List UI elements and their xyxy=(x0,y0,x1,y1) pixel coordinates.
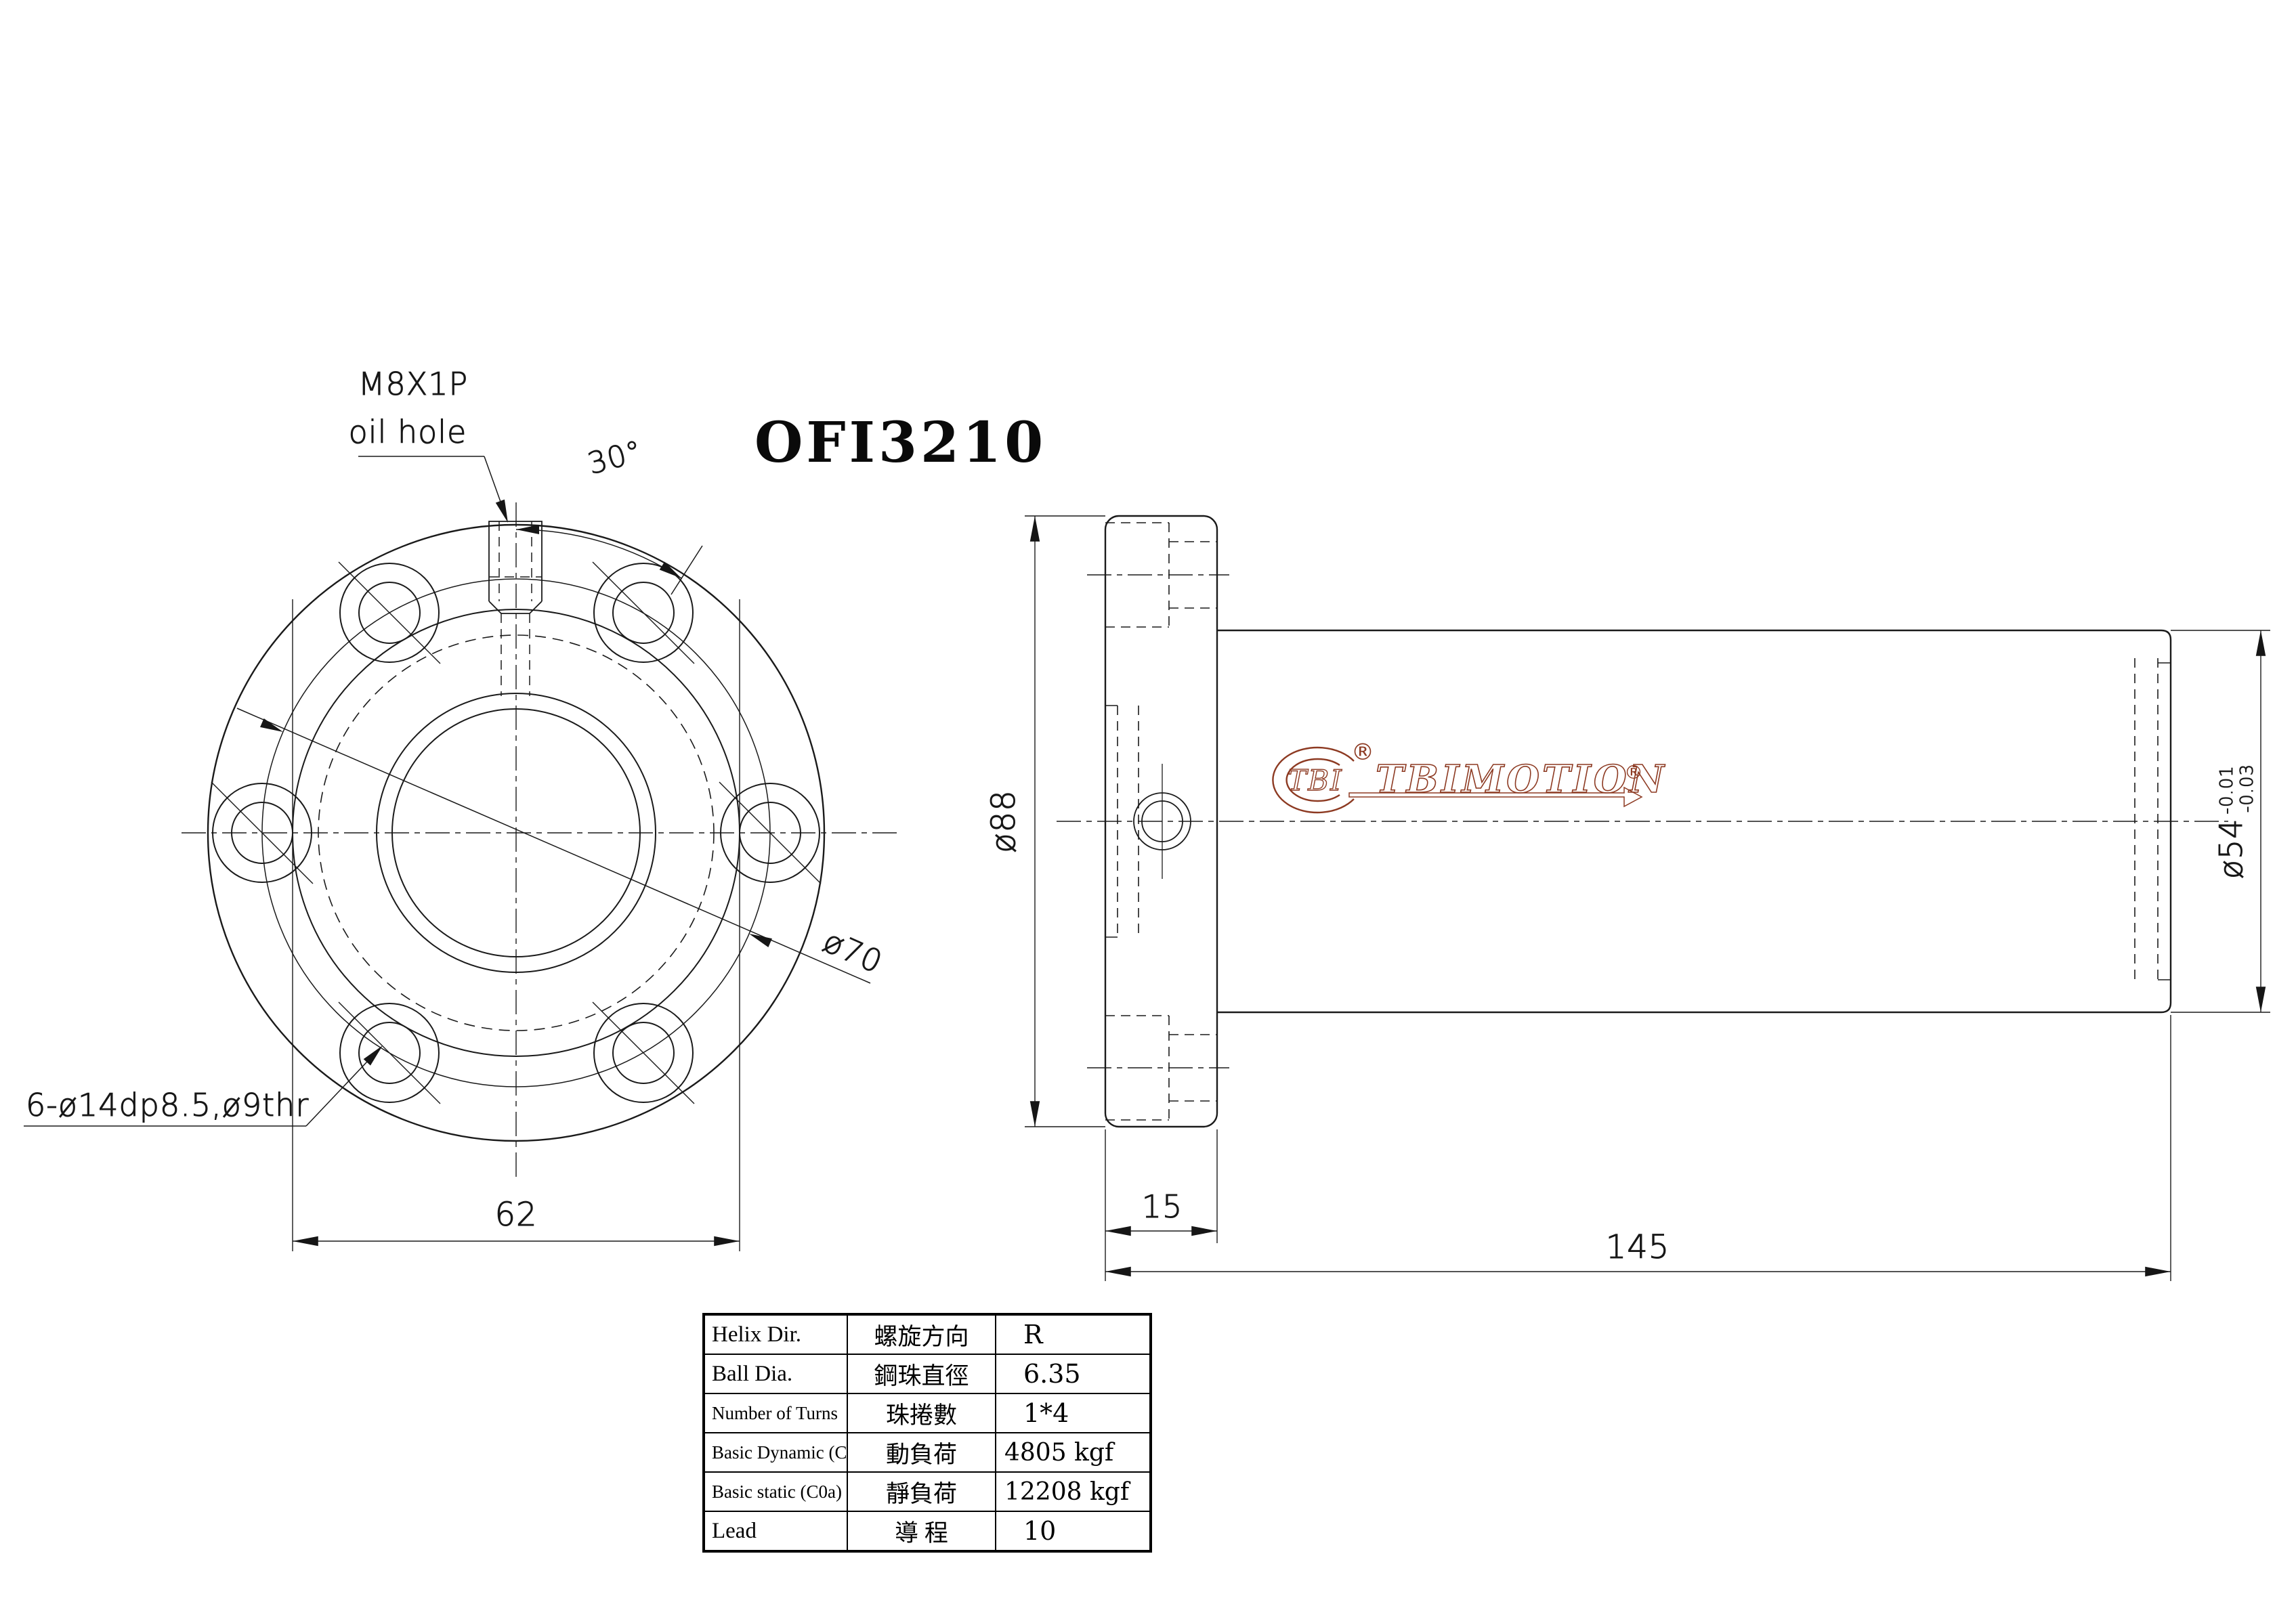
flange-oil-hole xyxy=(1134,764,1191,879)
angle-label: 30° xyxy=(584,434,646,481)
oil-hole-callout xyxy=(358,456,513,524)
bolt-hole xyxy=(593,1002,694,1104)
width-label: 62 xyxy=(494,1196,537,1234)
drawing-title: OFI3210 xyxy=(754,410,1046,475)
spec-label-en: Ball Dia. xyxy=(704,1354,847,1393)
body-diameter-label: ø54-0.01-0.03 xyxy=(2213,764,2257,879)
table-row: Basic Dynamic (Ca) 動負荷 4805 kgf xyxy=(704,1433,1151,1472)
spec-label-zh: 導 程 xyxy=(847,1511,996,1551)
spec-value: 6.35 xyxy=(996,1354,1151,1393)
spec-label-zh: 螺旋方向 xyxy=(847,1314,996,1354)
spec-value: 10 xyxy=(996,1511,1151,1551)
spec-table: Helix Dir. 螺旋方向 R Ball Dia. 鋼珠直徑 6.35 Nu… xyxy=(702,1313,1152,1553)
tbi-emblem-text: TBI xyxy=(1288,764,1342,797)
spec-value: R xyxy=(996,1314,1151,1354)
spec-value: 4805 kgf xyxy=(996,1433,1151,1472)
spec-label-en: Basic static (C0a) xyxy=(704,1472,847,1511)
spec-label-zh: 珠捲數 xyxy=(847,1393,996,1433)
oil-hole-label-line1: M8X1P xyxy=(358,366,468,402)
oil-hole-label-line2: oil hole xyxy=(349,414,467,450)
angle-dimension xyxy=(516,525,702,594)
spec-value: 12208 kgf xyxy=(996,1472,1151,1511)
engineering-drawing-page: M8X1P oil hole 30° ø70 6-ø14dp8.5,ø9thr … xyxy=(0,0,2296,1600)
flange-thickness-label: 15 xyxy=(1142,1188,1183,1225)
tbimotion-logo: TBI ® TBIMOTION ® xyxy=(1273,739,1666,813)
spec-label-en: Basic Dynamic (Ca) xyxy=(704,1433,847,1472)
bolt-circle-dimension xyxy=(237,708,870,983)
table-row: Lead 導 程 10 xyxy=(704,1511,1151,1551)
holes-label: 6-ø14dp8.5,ø9thr xyxy=(26,1087,309,1123)
spec-label-zh: 動負荷 xyxy=(847,1433,996,1472)
registered-mark-icon: ® xyxy=(1351,739,1374,766)
table-row: Basic static (C0a) 靜負荷 12208 kgf xyxy=(704,1472,1151,1511)
registered-mark-icon: ® xyxy=(1624,761,1643,783)
spec-value: 1*4 xyxy=(996,1393,1151,1433)
front-view: M8X1P oil hole 30° ø70 6-ø14dp8.5,ø9thr … xyxy=(24,366,902,1251)
flange-diameter-label: ø88 xyxy=(985,790,1023,852)
spec-label-en: Helix Dir. xyxy=(704,1314,847,1354)
spec-label-en: Lead xyxy=(704,1511,847,1551)
bolt-circle-label: ø70 xyxy=(818,922,889,980)
spec-label-zh: 鋼珠直徑 xyxy=(847,1354,996,1393)
oil-hole xyxy=(489,521,542,696)
spec-label-zh: 靜負荷 xyxy=(847,1472,996,1511)
table-row: Helix Dir. 螺旋方向 R xyxy=(704,1314,1151,1354)
table-row: Ball Dia. 鋼珠直徑 6.35 xyxy=(704,1354,1151,1393)
total-length-label: 145 xyxy=(1606,1228,1670,1266)
table-row: Number of Turns 珠捲數 1*4 xyxy=(704,1393,1151,1433)
side-view: ø88 15 145 ø54-0.01-0.03 xyxy=(985,516,2270,1281)
spec-label-en: Number of Turns xyxy=(704,1393,847,1433)
tbimotion-wordmark: TBIMOTION xyxy=(1376,757,1667,802)
